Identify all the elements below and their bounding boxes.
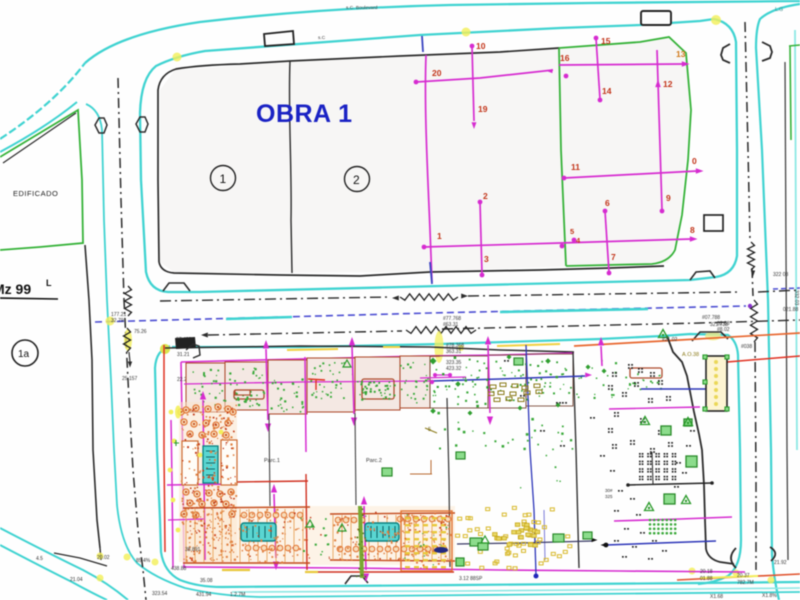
svg-text:Mz 99: Mz 99 [0, 281, 31, 297]
svg-text:2: 2 [353, 173, 360, 187]
svg-text:Parc.2: Parc.2 [366, 458, 382, 464]
svg-text:325: 325 [605, 494, 613, 499]
svg-text:25.157: 25.157 [122, 376, 138, 382]
svg-text:35.08: 35.08 [200, 578, 213, 584]
svg-text:438.88: 438.88 [171, 566, 187, 572]
svg-text:20.02: 20.02 [97, 555, 110, 561]
svg-text:20: 20 [432, 68, 442, 78]
svg-text:32.79: 32.79 [111, 318, 124, 324]
svg-text:423.32: 423.32 [446, 366, 462, 372]
svg-text:322 03: 322 03 [773, 272, 789, 278]
svg-text:0: 0 [692, 156, 697, 166]
svg-text:12: 12 [663, 79, 673, 89]
svg-text:19: 19 [478, 104, 488, 114]
svg-text:21.04: 21.04 [70, 577, 83, 583]
svg-text:7: 7 [611, 252, 616, 262]
svg-text:13: 13 [676, 49, 686, 59]
svg-text:38.891: 38.891 [185, 547, 201, 553]
svg-text:1: 1 [437, 231, 442, 241]
svg-text:363.31: 363.31 [446, 349, 462, 355]
svg-text:11: 11 [571, 162, 580, 172]
svg-text:#038: #038 [741, 344, 752, 350]
svg-text:#8.02: #8.02 [717, 327, 730, 333]
svg-text:5: 5 [570, 227, 574, 236]
svg-text:431.94: 431.94 [196, 592, 212, 598]
svg-text:30#: 30# [605, 488, 613, 493]
svg-text:16: 16 [560, 53, 570, 63]
svg-text:20.37: 20.37 [737, 573, 750, 579]
svg-text:s.C: s.C [318, 35, 326, 41]
svg-text:EDIFICADO: EDIFICADO [13, 189, 58, 198]
svg-text:X1.8%: X1.8% [762, 593, 777, 599]
svg-text:021.88: 021.88 [783, 307, 799, 313]
svg-text:75.26: 75.26 [134, 329, 147, 335]
svg-text:Parc.1: Parc.1 [264, 458, 280, 464]
svg-text:31.21: 31.21 [177, 352, 190, 358]
svg-text:332.03: 332.03 [793, 290, 799, 306]
svg-text:85.4%: 85.4% [136, 558, 151, 564]
svg-text:323.54: 323.54 [152, 591, 168, 597]
svg-text:1a: 1a [18, 349, 30, 360]
svg-text:14: 14 [602, 86, 612, 96]
svg-text:3: 3 [484, 254, 489, 264]
svg-text:3.12 88SP: 3.12 88SP [459, 576, 483, 582]
svg-text:s.C. Boulevard: s.C. Boulevard [346, 5, 378, 11]
svg-text:01.88: 01.88 [700, 576, 713, 582]
svg-text:782.7M: 782.7M [737, 580, 754, 586]
svg-text:#63.31: #63.31 [443, 322, 459, 328]
svg-text:L: L [46, 278, 52, 288]
svg-text:1: 1 [220, 172, 227, 186]
svg-text:15: 15 [601, 36, 611, 46]
svg-text:9: 9 [666, 193, 671, 203]
svg-text:X1.68: X1.68 [710, 594, 723, 600]
svg-text:20.18: 20.18 [700, 569, 713, 575]
svg-text:4.5: 4.5 [36, 556, 43, 562]
svg-text:OBRA 1: OBRA 1 [256, 100, 353, 128]
svg-text:10: 10 [476, 41, 486, 51]
svg-text:2: 2 [483, 191, 488, 201]
svg-text:6: 6 [605, 198, 610, 208]
svg-text:21.92: 21.92 [774, 560, 787, 566]
svg-text:1.2.7M: 1.2.7M [230, 592, 245, 598]
svg-text:L.G: L.G [775, 7, 783, 13]
svg-text:#21.02: #21.02 [662, 337, 678, 343]
svg-text:8: 8 [690, 225, 695, 235]
svg-text:A.O.38: A.O.38 [682, 352, 699, 358]
